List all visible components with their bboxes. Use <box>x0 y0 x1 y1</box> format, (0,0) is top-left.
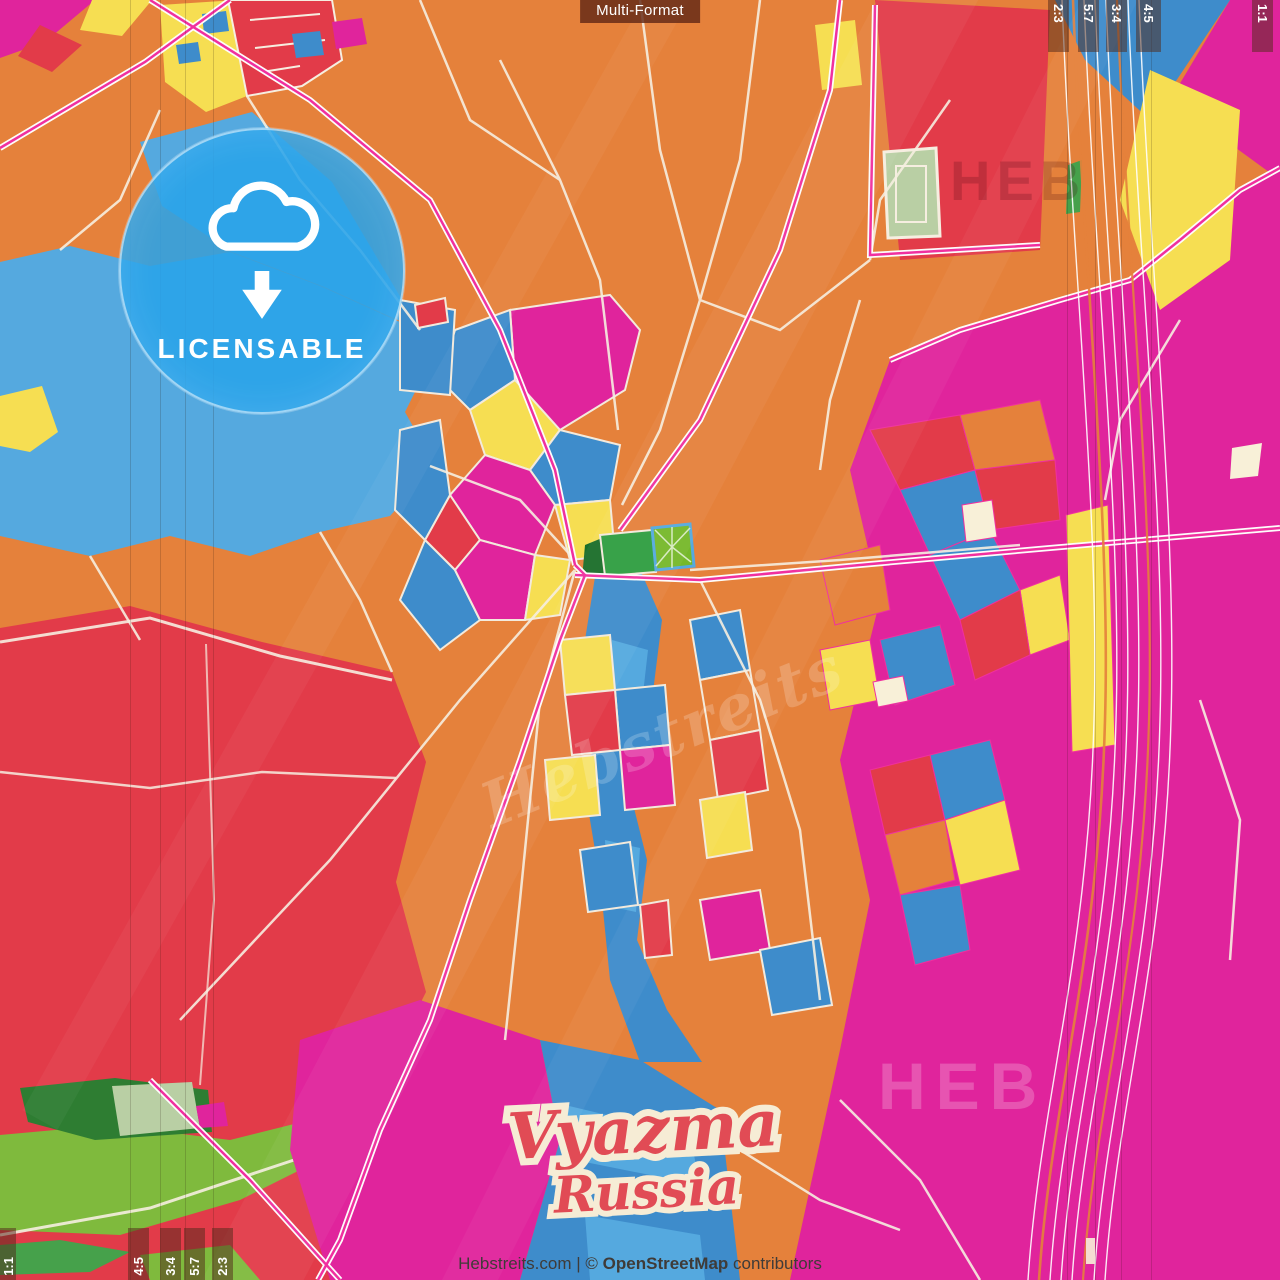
country-subtitle: Russia <box>550 1156 740 1225</box>
ratio-marker-top-2-3: 2:3 <box>1048 0 1069 52</box>
format-tag: Multi-Format <box>580 0 700 23</box>
footer-site: Hebstreits.com <box>458 1254 571 1273</box>
licensable-badge[interactable]: LICENSABLE <box>119 128 405 414</box>
footer-suffix: contributors <box>728 1254 822 1273</box>
footer-attribution: Hebstreits.com | © OpenStreetMap contrib… <box>0 1254 1280 1274</box>
licensable-label: LICENSABLE <box>158 333 367 365</box>
cloud-download-icon <box>195 167 330 267</box>
footer-separator: | © <box>572 1254 603 1273</box>
download-arrow-icon <box>237 271 287 321</box>
ratio-marker-top-3-4: 3:4 <box>1106 0 1127 52</box>
footer-osm-link[interactable]: OpenStreetMap <box>603 1254 729 1273</box>
map-poster: Vyazma Russia HEB HEB Hebstreits Multi-F… <box>0 0 1280 1280</box>
ratio-marker-top-4-5: 4:5 <box>1136 0 1161 52</box>
ratio-marker-top-5-7: 5:7 <box>1078 0 1099 52</box>
ratio-marker-top-1-1: 1:1 <box>1252 0 1273 52</box>
